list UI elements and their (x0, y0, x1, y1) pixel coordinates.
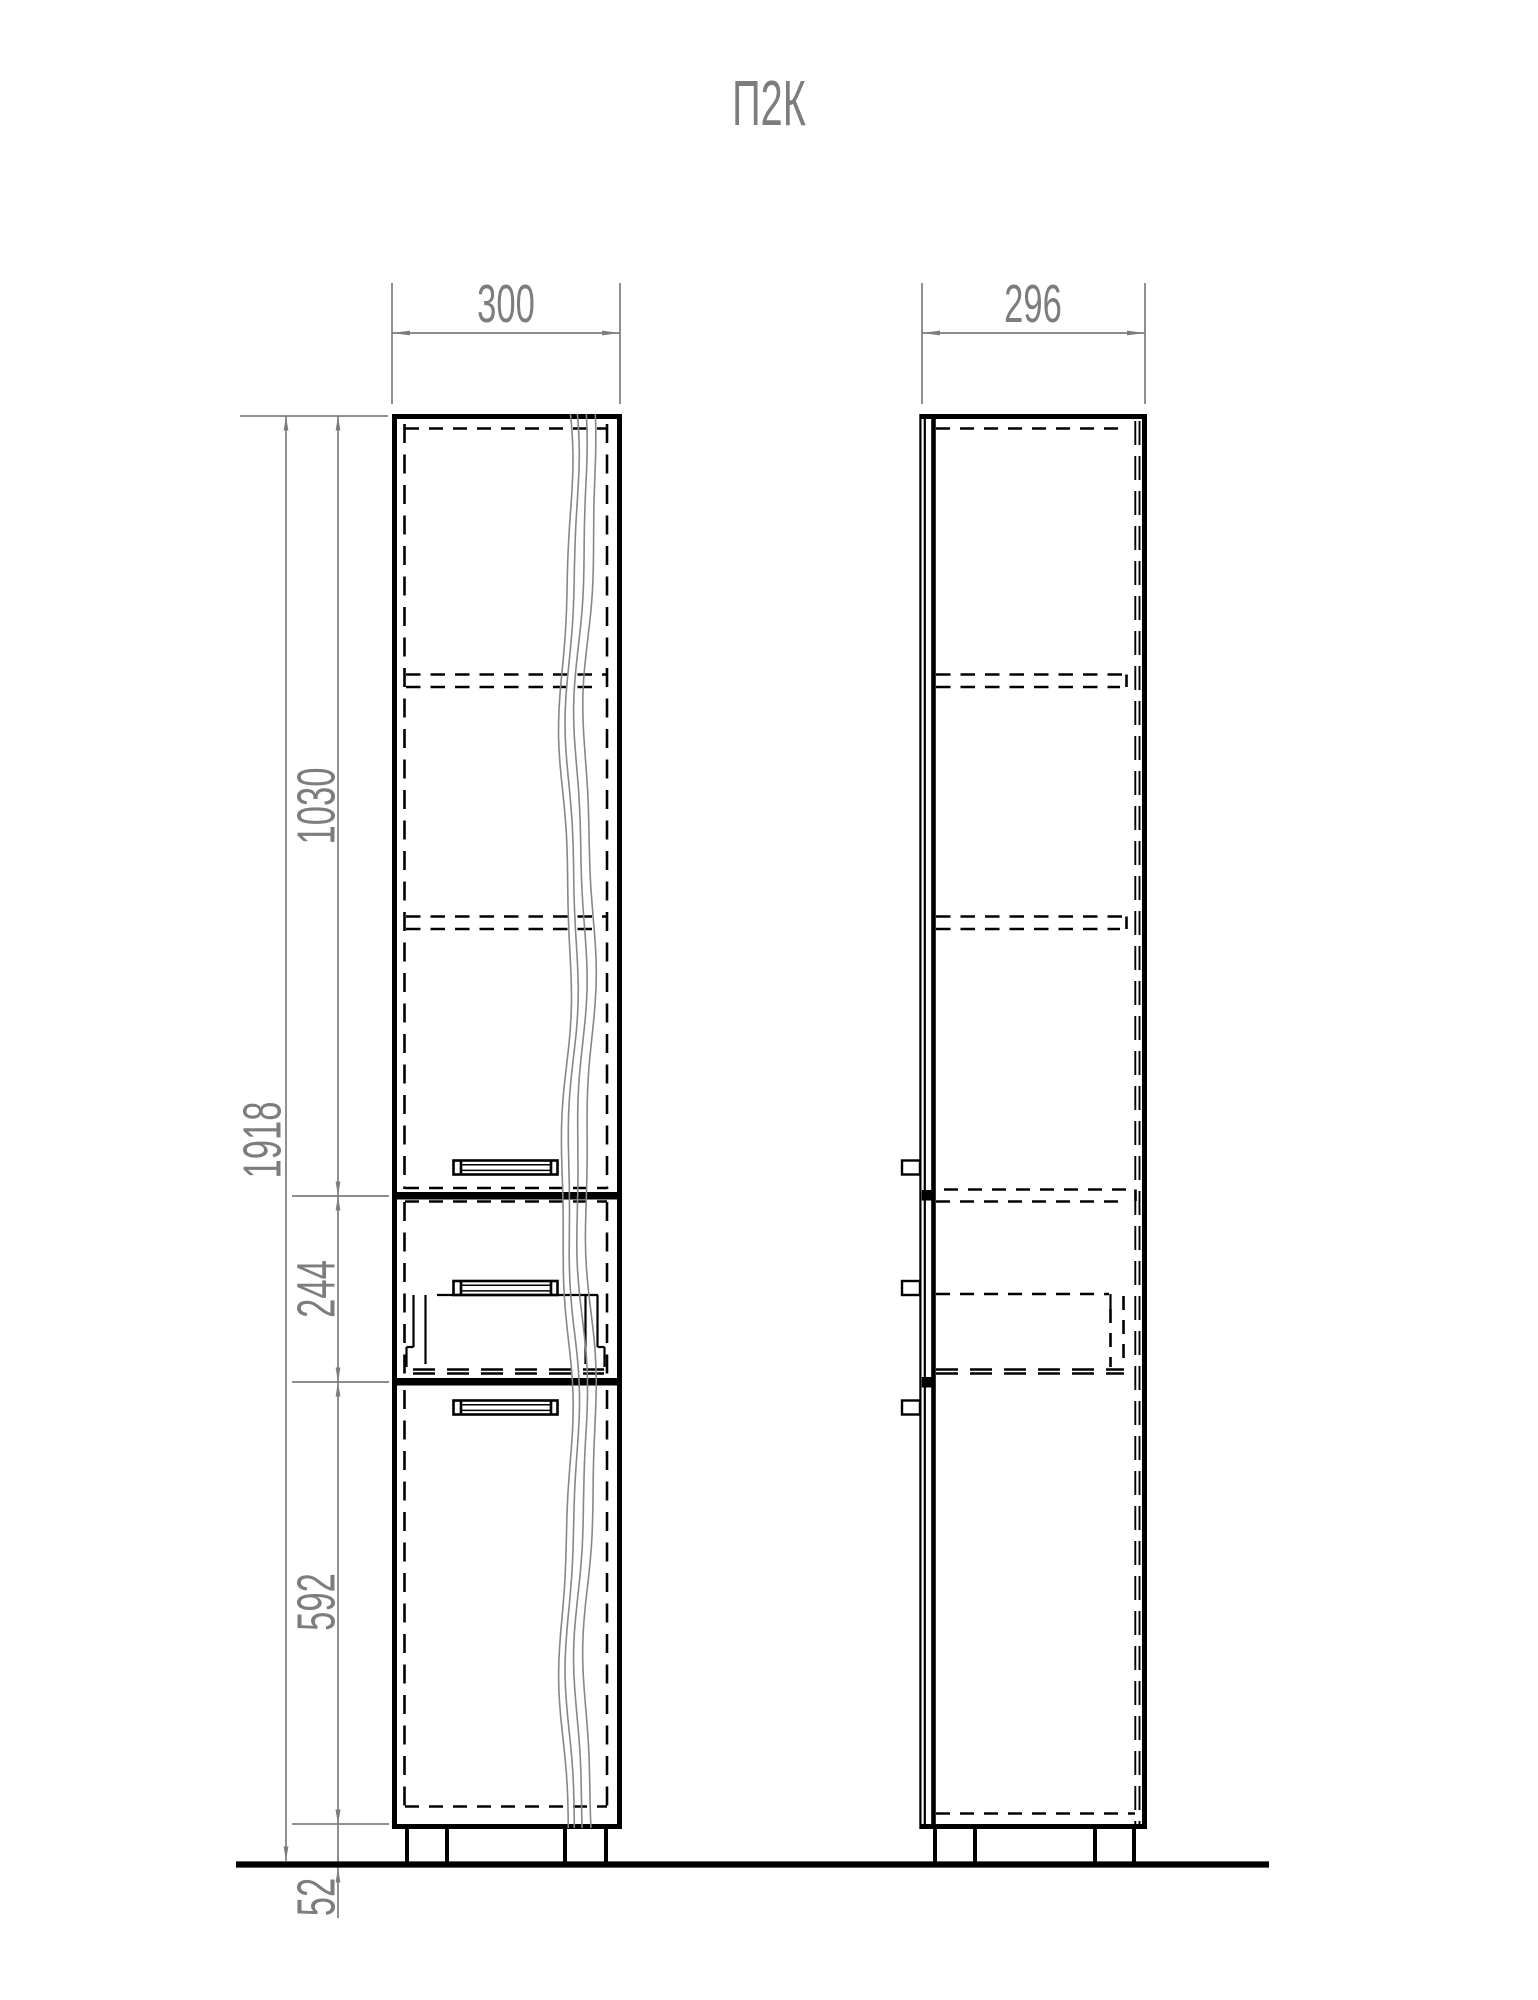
svg-text:1918: 1918 (232, 1102, 293, 1179)
svg-text:52: 52 (286, 1878, 347, 1916)
svg-text:296: 296 (1004, 273, 1062, 334)
svg-text:300: 300 (477, 273, 535, 334)
svg-text:592: 592 (286, 1573, 347, 1631)
svg-text:244: 244 (286, 1260, 347, 1318)
svg-text:П2К: П2К (732, 69, 806, 140)
svg-text:1030: 1030 (286, 768, 347, 845)
